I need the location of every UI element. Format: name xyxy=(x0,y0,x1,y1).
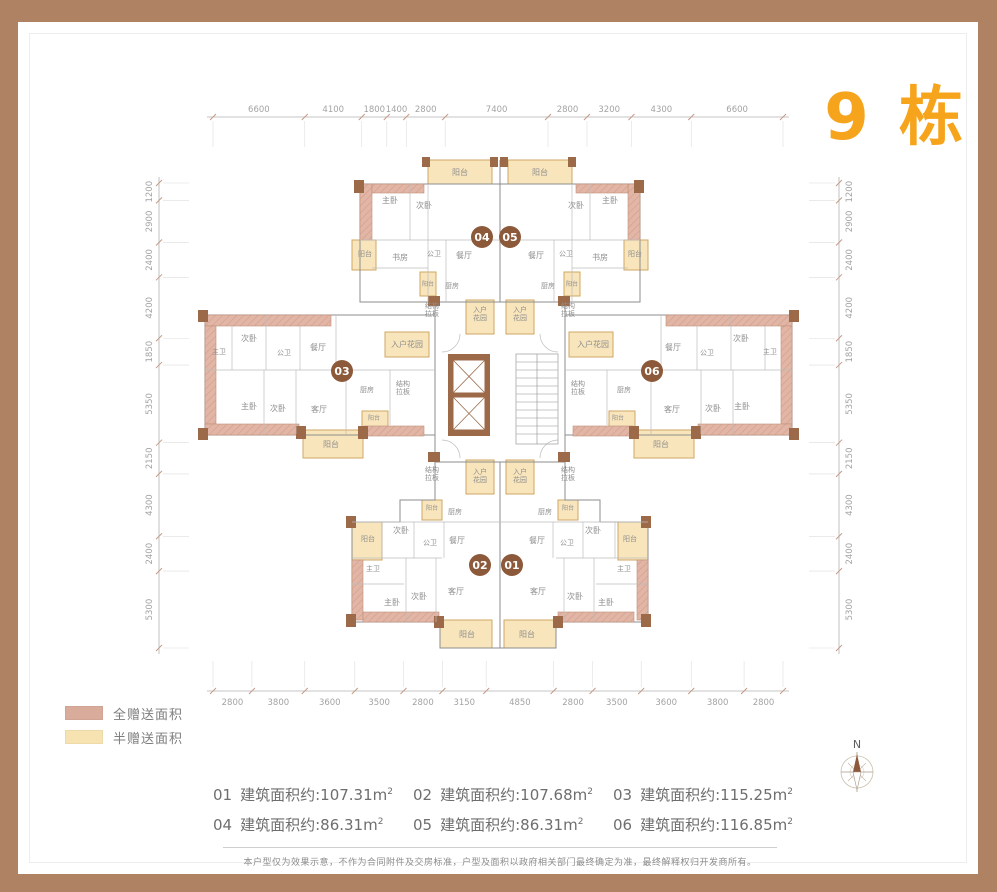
unit-badge-05: 05 xyxy=(499,226,521,248)
room-label: 次卧 xyxy=(568,200,584,210)
dim-label: 3800 xyxy=(707,698,729,708)
unit-badge-01: 01 xyxy=(501,554,523,576)
room-label: 阳台 xyxy=(459,629,475,639)
dim-label: 4200 xyxy=(845,297,855,319)
room-label: 厨房 xyxy=(448,507,462,516)
room-label: 主卧 xyxy=(602,195,618,205)
dim-label: 1850 xyxy=(145,341,155,363)
dim-label: 5350 xyxy=(845,393,855,415)
dim-label: 2900 xyxy=(145,211,155,233)
svg-text:02: 02 xyxy=(472,559,487,572)
dim-label: 2900 xyxy=(845,211,855,233)
dim-label: 4200 xyxy=(145,297,155,319)
unit-area-03: 03建筑面积约:115.25m2 xyxy=(613,784,798,805)
room-label: 客厅 xyxy=(448,586,464,596)
room-label: 阳台 xyxy=(566,280,578,288)
floorplan-svg: N 66004100180014002800740028003200430066… xyxy=(0,0,997,892)
room-label: 餐厅 xyxy=(665,343,681,352)
room-label: 阳台 xyxy=(653,439,669,449)
room-label: 餐厅 xyxy=(528,251,544,260)
dim-label: 2400 xyxy=(145,249,155,271)
dim-run-bottom: 2800380036003500280031504850280035003600… xyxy=(207,661,789,708)
legend-label: 半赠送面积 xyxy=(113,728,183,747)
room-label: 厨房 xyxy=(445,281,459,290)
elevator-core xyxy=(448,354,490,436)
room-label: 次卧 xyxy=(733,333,749,343)
room-label: 客厅 xyxy=(311,404,327,414)
room-label: 阳台 xyxy=(519,629,535,639)
dim-label: 2400 xyxy=(845,249,855,271)
dim-run-left: 1200290024004200185053502150430024005300 xyxy=(145,177,189,654)
room-label: 主卫 xyxy=(366,564,380,573)
room-label: 结构拉板 xyxy=(425,301,439,318)
svg-text:03: 03 xyxy=(334,365,349,378)
legend-item-half-gift: 半赠送面积 xyxy=(65,730,183,744)
dim-label: 3200 xyxy=(598,105,620,115)
legend: 全赠送面积 半赠送面积 xyxy=(65,706,183,754)
unit-badge-04: 04 xyxy=(471,226,493,248)
unit-badge-02: 02 xyxy=(469,554,491,576)
room-label: 阳台 xyxy=(358,249,372,258)
room-label: 主卧 xyxy=(598,597,614,607)
room-label: 结构拉板 xyxy=(561,465,575,482)
legend-item-full-gift: 全赠送面积 xyxy=(65,706,183,720)
room-label: 厨房 xyxy=(538,507,552,516)
room-label: 入户花园 xyxy=(391,339,423,349)
svg-text:04: 04 xyxy=(474,231,490,244)
unit-area-list: 01建筑面积约:107.31m2 02建筑面积约:107.68m2 03建筑面积… xyxy=(213,784,798,835)
room-label: 阳台 xyxy=(422,280,434,288)
structural-columns xyxy=(198,157,799,628)
dim-label: 5300 xyxy=(845,599,855,621)
dim-label: 3800 xyxy=(268,698,290,708)
dim-label: 4300 xyxy=(145,494,155,516)
room-label: 次卧 xyxy=(567,591,583,601)
room-label: 餐厅 xyxy=(529,536,545,545)
dim-label: 2400 xyxy=(145,543,155,565)
dim-label: 4300 xyxy=(845,494,855,516)
room-label: 阳台 xyxy=(532,167,548,177)
room-label: 书房 xyxy=(392,252,408,262)
room-label: 次卧 xyxy=(411,591,427,601)
room-label: 主卧 xyxy=(734,401,750,411)
dim-label: 7400 xyxy=(486,105,508,115)
room-label: 主卫 xyxy=(617,564,631,573)
room-label: 主卫 xyxy=(212,347,226,356)
room-label: 阳台 xyxy=(628,249,642,258)
dim-label: 2800 xyxy=(557,105,579,115)
building-outline xyxy=(205,160,792,648)
dim-label: 1850 xyxy=(845,341,855,363)
room-label: 餐厅 xyxy=(310,343,326,352)
room-label: 公卫 xyxy=(700,349,714,357)
room-label: 入户花园 xyxy=(473,467,487,484)
room-label: 公卫 xyxy=(427,250,441,258)
room-label: 主卧 xyxy=(384,597,400,607)
room-label: 入户花园 xyxy=(513,305,527,322)
room-label: 结构拉板 xyxy=(561,301,575,318)
unit-area-04: 04建筑面积约:86.31m2 xyxy=(213,814,413,835)
dim-label: 2800 xyxy=(562,698,584,708)
compass-north-label: N xyxy=(853,738,861,751)
room-label: 入户花园 xyxy=(473,305,487,322)
dim-label: 4850 xyxy=(509,698,531,708)
room-label: 阳台 xyxy=(612,414,624,422)
dim-label: 2400 xyxy=(845,543,855,565)
dim-label: 2150 xyxy=(145,447,155,469)
room-label: 主卧 xyxy=(382,195,398,205)
dim-label: 1200 xyxy=(145,181,155,203)
staircase xyxy=(516,354,558,444)
svg-text:05: 05 xyxy=(502,231,517,244)
dim-label: 2800 xyxy=(753,698,775,708)
room-label: 厨房 xyxy=(617,385,631,394)
room-label: 次卧 xyxy=(270,403,286,413)
dim-label: 6600 xyxy=(248,105,270,115)
legend-label: 全赠送面积 xyxy=(113,704,183,723)
room-label: 厨房 xyxy=(541,281,555,290)
room-label: 阳台 xyxy=(368,414,380,422)
room-label: 厨房 xyxy=(360,385,374,394)
half-gift-swatch xyxy=(65,730,103,744)
dim-label: 2800 xyxy=(222,698,244,708)
svg-text:06: 06 xyxy=(644,365,660,378)
room-label: 结构拉板 xyxy=(425,465,439,482)
unit-area-02: 02建筑面积约:107.68m2 xyxy=(413,784,613,805)
dim-label: 3500 xyxy=(368,698,390,708)
room-label: 公卫 xyxy=(423,539,437,547)
room-label: 次卧 xyxy=(393,525,409,535)
room-label: 餐厅 xyxy=(449,536,465,545)
unit-area-06: 06建筑面积约:116.85m2 xyxy=(613,814,798,835)
dim-label: 1200 xyxy=(845,181,855,203)
svg-text:01: 01 xyxy=(504,559,519,572)
dim-label: 2150 xyxy=(845,447,855,469)
room-label: 次卧 xyxy=(705,403,721,413)
dim-label: 4300 xyxy=(651,105,673,115)
disclaimer-text: 本户型仅为效果示意，不作为合同附件及交房标准，户型及面积以政府相关部门最终确定为… xyxy=(223,847,777,868)
room-label: 餐厅 xyxy=(456,251,472,260)
unit-badge-06: 06 xyxy=(641,360,663,382)
dim-label: 6600 xyxy=(726,105,748,115)
room-labels: 阳台阳台主卧次卧次卧主卧阳台书房公卫餐厅餐厅公卫书房阳台厨房阳台阳台厨房结构拉板… xyxy=(212,167,777,639)
dim-label: 1800 xyxy=(363,105,385,115)
room-label: 次卧 xyxy=(416,200,432,210)
unit-badge-03: 03 xyxy=(331,360,353,382)
room-label: 公卫 xyxy=(559,250,573,258)
dim-run-top: 6600410018001400280074002800320043006600 xyxy=(207,105,789,147)
dim-label: 3500 xyxy=(606,698,628,708)
dim-label: 1400 xyxy=(386,105,408,115)
dim-label: 4100 xyxy=(322,105,344,115)
dim-label: 2800 xyxy=(415,105,437,115)
room-label: 公卫 xyxy=(560,539,574,547)
room-label: 结构拉板 xyxy=(571,379,585,396)
dim-label: 5300 xyxy=(145,599,155,621)
room-label: 公卫 xyxy=(277,349,291,357)
room-label: 阳台 xyxy=(361,534,375,543)
dim-label: 3150 xyxy=(453,698,475,708)
room-label: 次卧 xyxy=(585,525,601,535)
floorplan-page: 9 栋 xyxy=(0,0,997,892)
room-label: 阳台 xyxy=(426,504,438,512)
room-label: 阳台 xyxy=(623,534,637,543)
gifted-area-walls xyxy=(205,184,792,622)
room-label: 主卧 xyxy=(241,401,257,411)
dim-run-right: 1200290024004200185053502150430024005300 xyxy=(809,177,855,654)
room-label: 次卧 xyxy=(241,333,257,343)
dim-label: 2800 xyxy=(412,698,434,708)
room-label: 主卫 xyxy=(763,347,777,356)
room-label: 客厅 xyxy=(664,404,680,414)
unit-area-05: 05建筑面积约:86.31m2 xyxy=(413,814,613,835)
room-label: 入户花园 xyxy=(577,339,609,349)
dim-label: 5350 xyxy=(145,393,155,415)
interior-walls xyxy=(205,184,792,622)
unit-area-01: 01建筑面积约:107.31m2 xyxy=(213,784,413,805)
room-label: 书房 xyxy=(592,252,608,262)
room-label: 入户花园 xyxy=(513,467,527,484)
room-label: 阳台 xyxy=(452,167,468,177)
room-label: 阳台 xyxy=(323,439,339,449)
room-label: 阳台 xyxy=(562,504,574,512)
room-label: 客厅 xyxy=(530,586,546,596)
dim-label: 3600 xyxy=(319,698,341,708)
room-label: 结构拉板 xyxy=(396,379,410,396)
full-gift-swatch xyxy=(65,706,103,720)
dim-label: 3600 xyxy=(655,698,677,708)
compass-icon: N xyxy=(841,738,873,792)
